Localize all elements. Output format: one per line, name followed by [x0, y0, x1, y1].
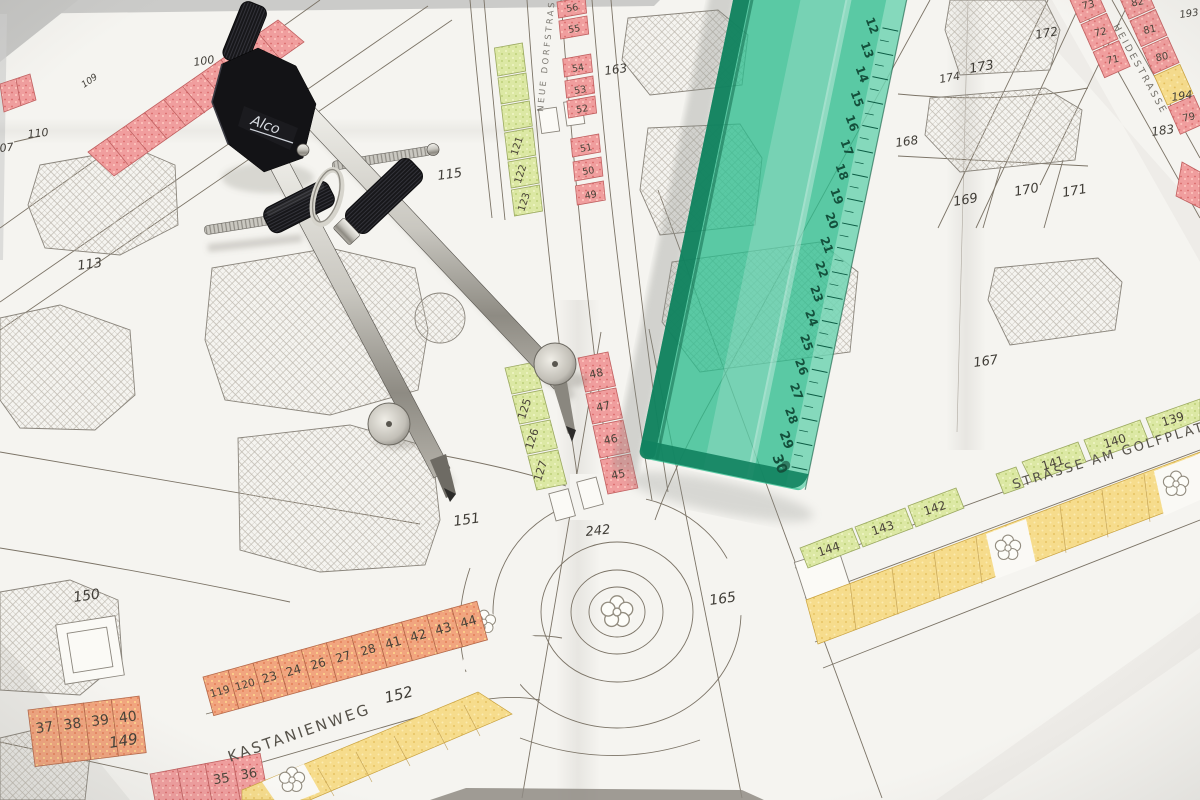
- vignette: [0, 0, 1200, 800]
- photo-of-site-plan: 56 55 54 53 52 51 50 49 48 47 46 45 121 …: [0, 0, 1200, 800]
